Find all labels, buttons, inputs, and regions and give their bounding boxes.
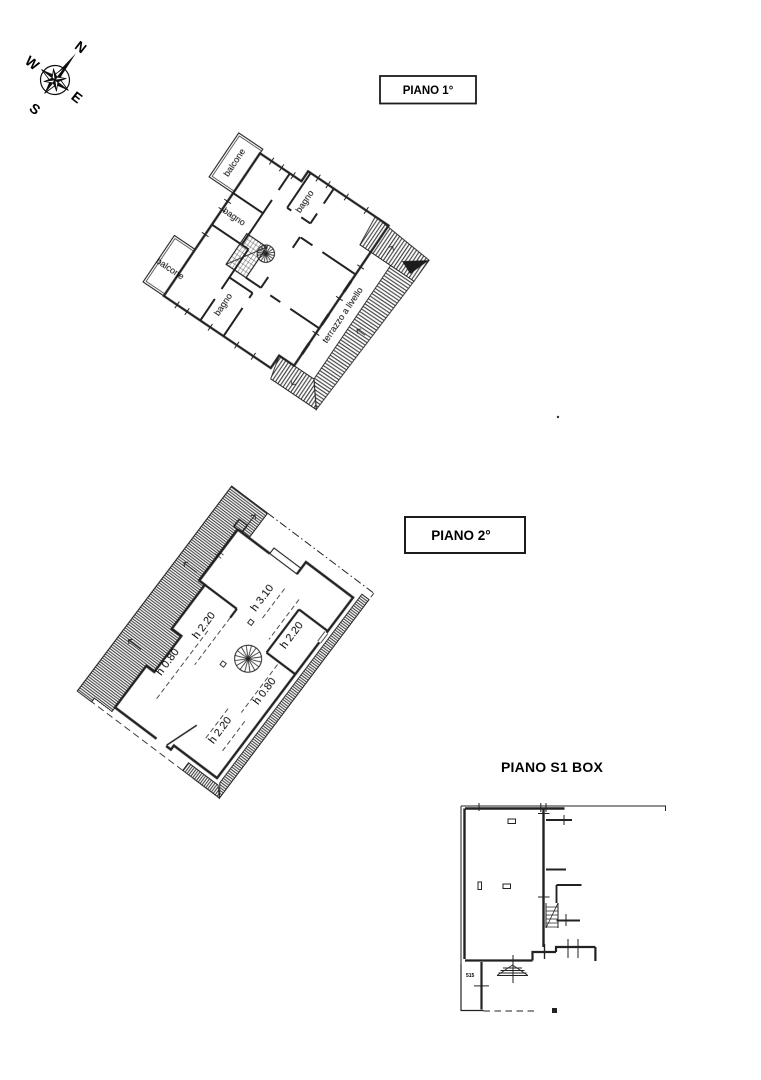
svg-text:balcone: balcone bbox=[221, 147, 247, 179]
svg-text:PIANO S1 BOX: PIANO S1 BOX bbox=[501, 759, 603, 775]
svg-text:515: 515 bbox=[466, 973, 475, 979]
svg-text:h 2.20: h 2.20 bbox=[206, 715, 234, 747]
svg-text:PIANO 1°: PIANO 1° bbox=[403, 85, 454, 97]
svg-text:h 2.20: h 2.20 bbox=[278, 620, 306, 652]
svg-text:S: S bbox=[26, 100, 43, 118]
svg-text:h 3.10: h 3.10 bbox=[248, 582, 276, 614]
svg-text:h 2.20: h 2.20 bbox=[190, 610, 218, 642]
svg-text:bagno: bagno bbox=[212, 291, 234, 317]
svg-text:E: E bbox=[68, 88, 85, 106]
svg-text:W: W bbox=[22, 52, 43, 73]
svg-text:bagno: bagno bbox=[221, 206, 247, 228]
svg-text:N: N bbox=[72, 37, 90, 56]
svg-text:PIANO 2°: PIANO 2° bbox=[431, 528, 490, 543]
